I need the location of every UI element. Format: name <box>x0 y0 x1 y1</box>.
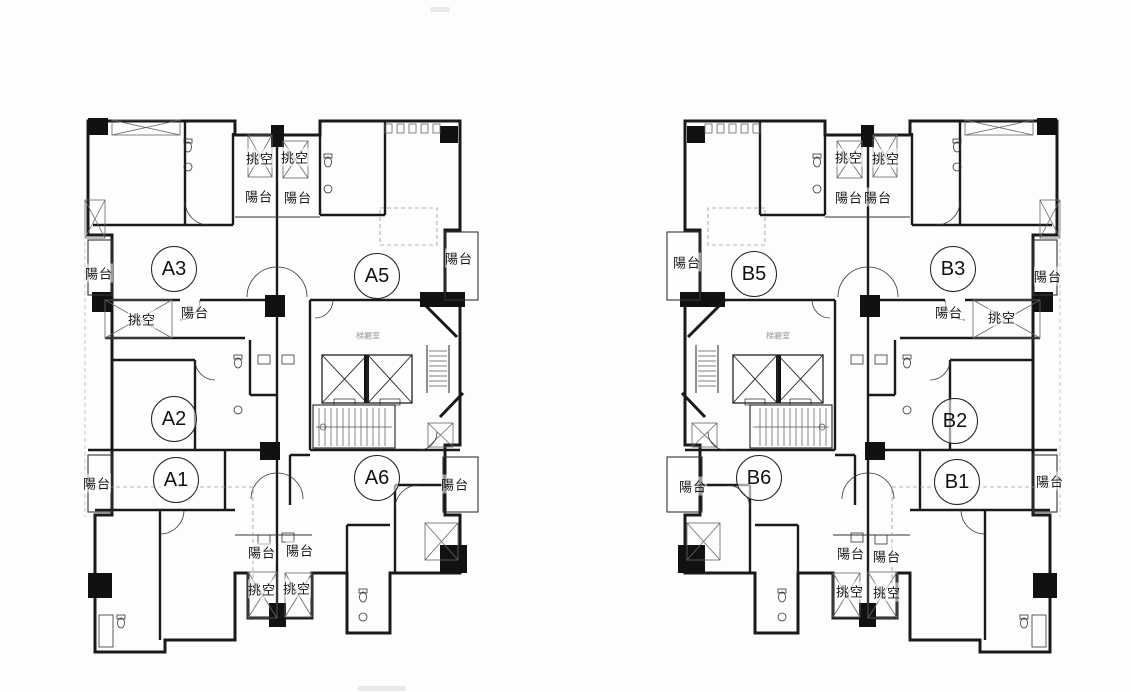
building-a-plan <box>85 118 478 652</box>
floor-plan-drawing <box>0 0 1131 692</box>
building-b-plan <box>667 118 1060 652</box>
scan-artifact-top <box>430 7 450 12</box>
floor-plan-page: A3A5A2A1A6挑空挑空陽台陽台陽台挑空陽台陽台陽台陽台陽台陽台挑空挑空梯廳… <box>0 0 1131 692</box>
scan-artifact-bottom <box>358 686 406 691</box>
